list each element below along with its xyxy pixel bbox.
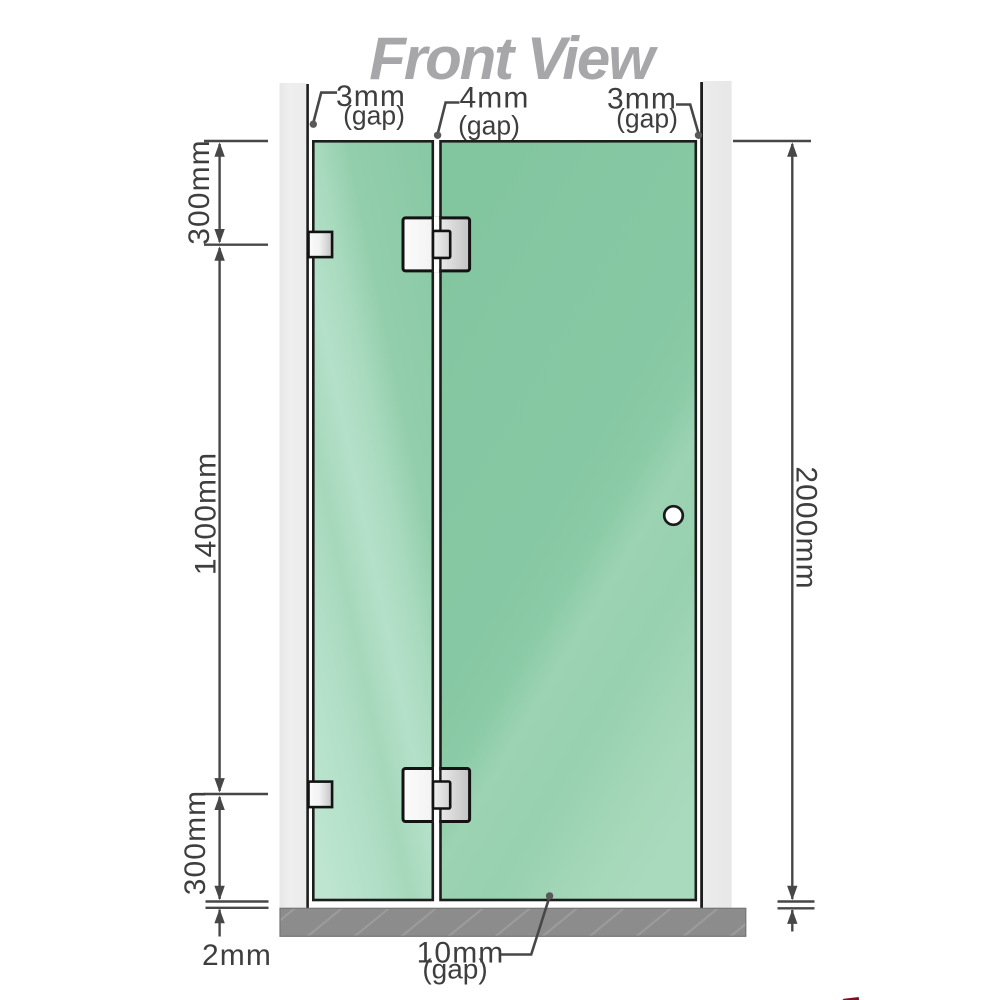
svg-text:300mm: 300mm	[179, 790, 212, 896]
svg-text:1400mm: 1400mm	[190, 452, 223, 575]
svg-text:(gap): (gap)	[422, 954, 487, 985]
svg-text:2mm: 2mm	[202, 939, 272, 972]
svg-text:(gap): (gap)	[616, 104, 678, 134]
svg-text:(gap): (gap)	[458, 111, 520, 141]
svg-text:(gap): (gap)	[343, 101, 405, 131]
svg-text:300mm: 300mm	[183, 139, 216, 245]
svg-text:2000mm: 2000mm	[790, 466, 823, 589]
